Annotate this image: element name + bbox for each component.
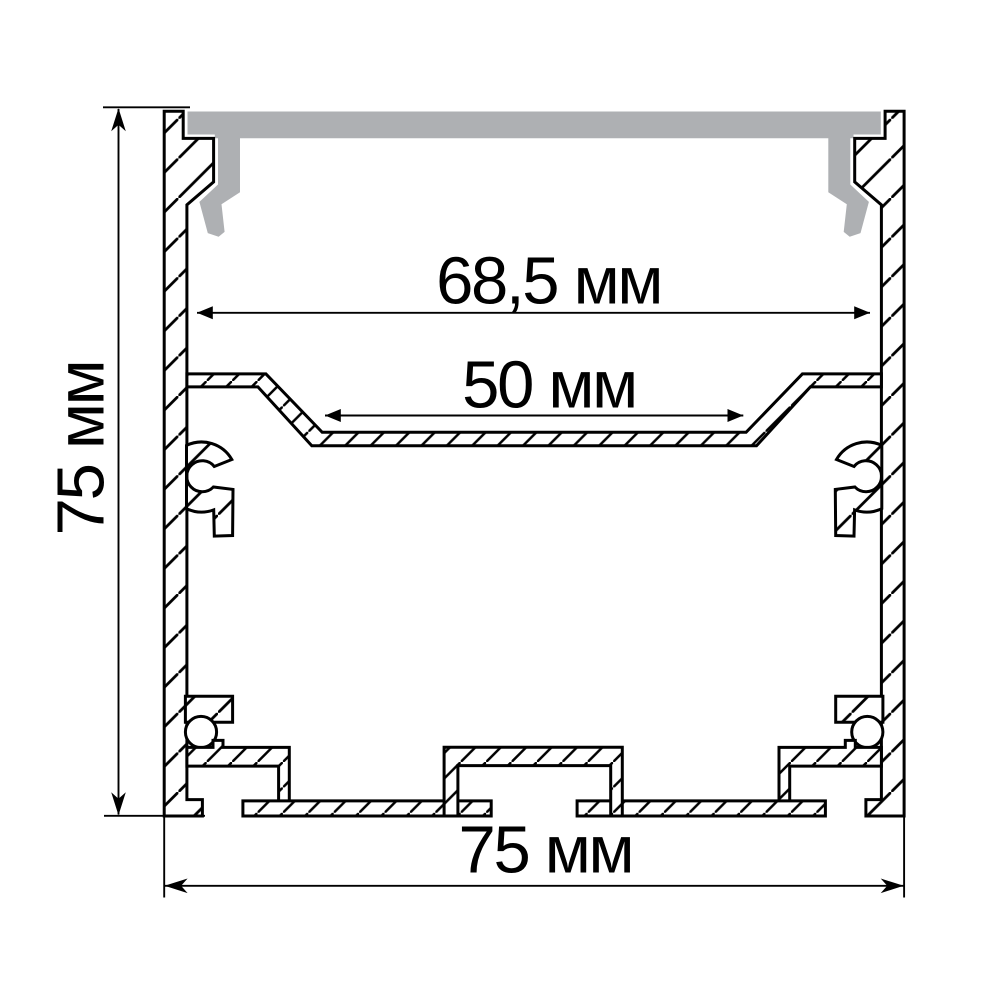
svg-text:75 мм: 75 мм: [44, 362, 119, 536]
svg-text:50 мм: 50 мм: [462, 348, 636, 423]
svg-text:75 мм: 75 мм: [459, 812, 633, 887]
svg-text:68,5 мм: 68,5 мм: [436, 244, 661, 319]
